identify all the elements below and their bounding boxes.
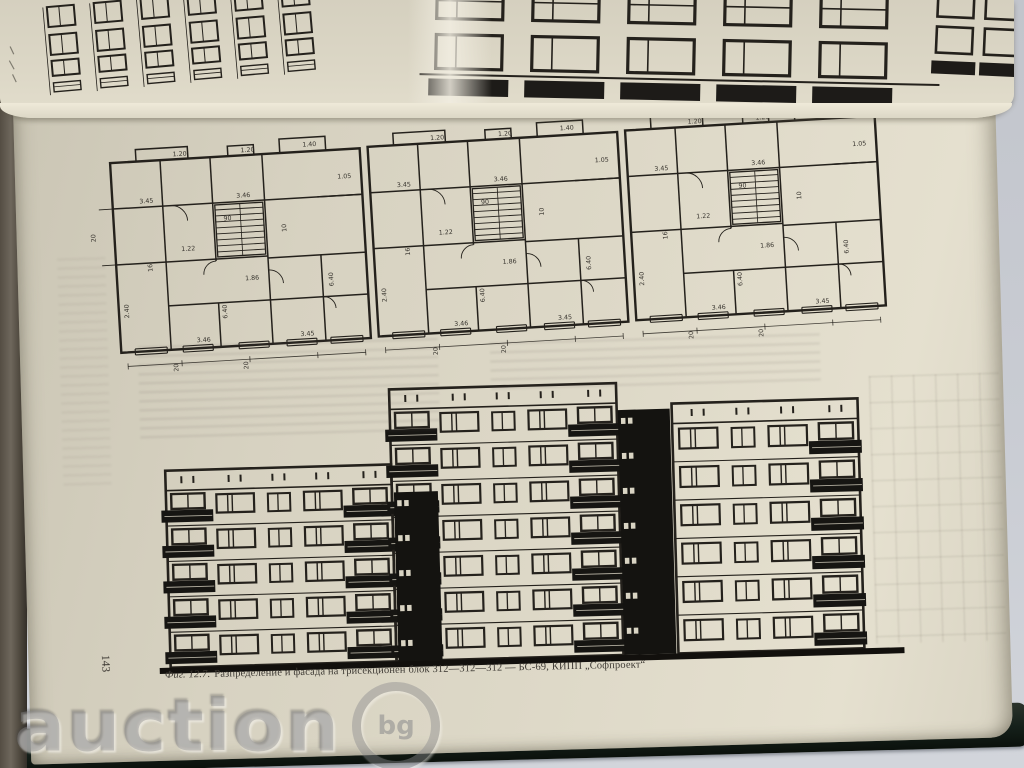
facade-drawing <box>152 375 904 671</box>
svg-text:3.45: 3.45 <box>815 298 829 306</box>
svg-text:3.46: 3.46 <box>751 159 765 167</box>
facade-section-right <box>672 398 868 653</box>
svg-text:20: 20 <box>501 345 508 353</box>
svg-text:2.40: 2.40 <box>381 288 389 302</box>
plan-section: 1.201.201.403.453.461.051.2290101.86166.… <box>109 134 372 376</box>
svg-text:90: 90 <box>223 215 231 222</box>
previous-page-drawing <box>0 0 1014 118</box>
svg-text:20: 20 <box>173 363 180 371</box>
svg-text:20: 20 <box>688 331 695 339</box>
svg-text:1.20: 1.20 <box>430 134 444 142</box>
svg-text:1.40: 1.40 <box>302 141 316 149</box>
svg-text:6.40: 6.40 <box>222 304 230 318</box>
book-photo: 1.201.201.403.453.461.051.2290101.86166.… <box>0 0 1024 768</box>
svg-text:6.40: 6.40 <box>479 288 487 302</box>
svg-text:20: 20 <box>243 361 250 369</box>
svg-text:6.40: 6.40 <box>843 239 851 253</box>
svg-text:3.46: 3.46 <box>712 304 726 312</box>
page-edge-highlight <box>0 103 1012 118</box>
svg-text:20: 20 <box>90 234 97 242</box>
svg-text:1.05: 1.05 <box>852 140 866 148</box>
svg-text:6.40: 6.40 <box>585 256 593 270</box>
page-fold-highlight <box>408 0 492 118</box>
svg-text:16: 16 <box>147 264 154 272</box>
svg-text:90: 90 <box>481 199 489 206</box>
svg-text:10: 10 <box>538 207 545 215</box>
svg-text:1.05: 1.05 <box>595 157 609 165</box>
svg-text:1.20: 1.20 <box>240 147 254 155</box>
svg-text:1.86: 1.86 <box>502 258 516 266</box>
svg-text:3.45: 3.45 <box>300 330 314 338</box>
svg-text:16: 16 <box>405 247 412 255</box>
book-page: 1.201.201.403.453.461.051.2290101.86166.… <box>13 82 1013 764</box>
svg-text:6.40: 6.40 <box>328 272 336 286</box>
caption-figure-label: Фиг. 12.7. <box>165 669 211 681</box>
svg-text:20: 20 <box>758 329 765 337</box>
plan-section: 1.201.201.403.453.461.051.2290101.86166.… <box>624 102 887 344</box>
svg-text:1.22: 1.22 <box>181 245 195 253</box>
svg-text:2.40: 2.40 <box>123 304 131 318</box>
page-number: 143 <box>99 655 111 673</box>
svg-text:1.05: 1.05 <box>337 173 351 181</box>
svg-text:1.20: 1.20 <box>172 151 186 159</box>
svg-text:3.45: 3.45 <box>654 165 668 173</box>
svg-text:1.86: 1.86 <box>760 242 774 250</box>
svg-text:3.46: 3.46 <box>236 192 250 200</box>
svg-text:6.40: 6.40 <box>737 272 745 286</box>
svg-text:1.86: 1.86 <box>245 275 259 283</box>
svg-text:20: 20 <box>433 347 440 355</box>
floor-plan-drawing: 1.201.201.403.453.461.051.2290101.86166.… <box>85 102 887 378</box>
svg-text:1.20: 1.20 <box>498 130 512 138</box>
svg-text:3.45: 3.45 <box>558 314 572 322</box>
svg-text:3.45: 3.45 <box>397 181 411 189</box>
svg-text:1.22: 1.22 <box>696 213 710 221</box>
svg-text:1.20: 1.20 <box>687 118 701 126</box>
svg-text:10: 10 <box>796 191 803 199</box>
svg-text:2.40: 2.40 <box>638 272 646 286</box>
svg-text:10: 10 <box>281 224 288 232</box>
facade-section-left <box>160 464 399 667</box>
svg-text:90: 90 <box>738 182 746 189</box>
svg-text:3.46: 3.46 <box>197 336 211 344</box>
svg-text:1.22: 1.22 <box>439 229 453 237</box>
svg-text:3.46: 3.46 <box>454 320 468 328</box>
svg-text:3.46: 3.46 <box>494 176 508 184</box>
svg-text:3.45: 3.45 <box>139 198 153 206</box>
previous-page <box>0 0 1014 118</box>
plan-section: 1.201.201.403.453.461.051.2290101.86166.… <box>367 118 630 360</box>
svg-text:16: 16 <box>662 231 669 239</box>
svg-text:1.40: 1.40 <box>560 125 574 133</box>
